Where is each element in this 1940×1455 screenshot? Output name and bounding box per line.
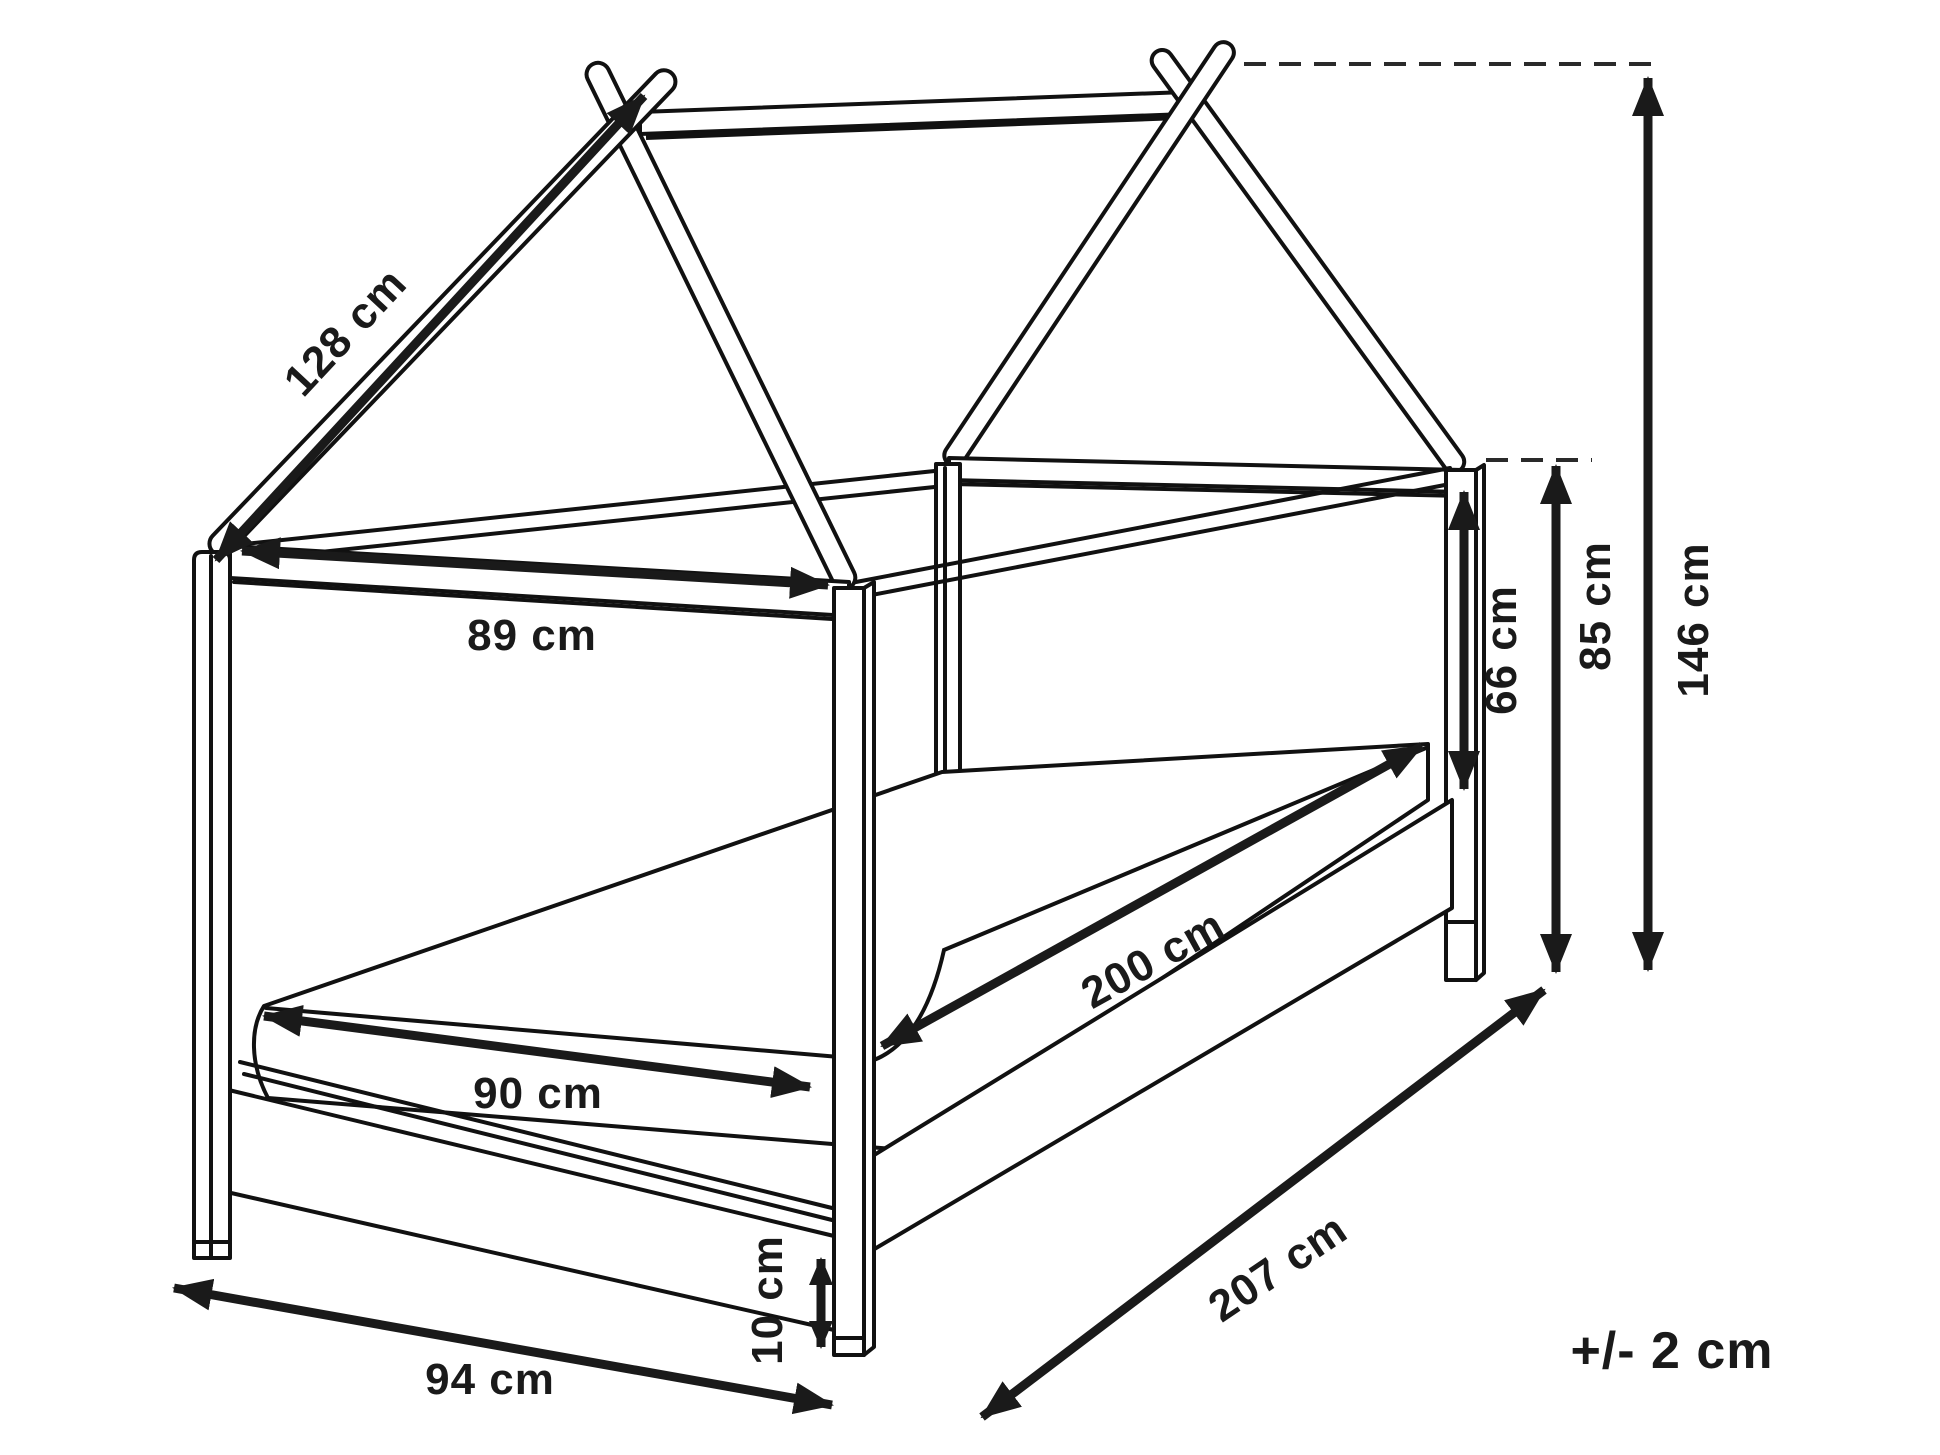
label-side-height: 85 cm — [1571, 541, 1620, 671]
dimension-diagram: 128 cm 89 cm 90 cm 200 cm 94 cm 207 cm 1… — [0, 0, 1940, 1455]
bed-drawing-canvas: 128 cm 89 cm 90 cm 200 cm 94 cm 207 cm 1… — [0, 0, 1940, 1455]
arrow-roof-slope — [216, 96, 644, 560]
label-base-length: 207 cm — [1200, 1204, 1356, 1331]
foot-gable — [936, 38, 1468, 786]
label-top-width: 89 cm — [467, 611, 597, 660]
label-base-width: 94 cm — [425, 1355, 555, 1404]
head-gable — [205, 59, 859, 620]
front-right-post — [834, 582, 874, 1355]
label-tolerance: +/- 2 cm — [1570, 1322, 1773, 1380]
label-clearance: 10 cm — [743, 1235, 792, 1365]
ridge-beam — [640, 92, 1186, 137]
label-total-height: 146 cm — [1669, 542, 1718, 697]
front-left-post — [194, 552, 230, 1258]
label-post-height: 66 cm — [1477, 585, 1526, 715]
label-roof-slope: 128 cm — [275, 259, 417, 406]
label-mattress-width: 90 cm — [473, 1069, 603, 1118]
rear-left-post — [936, 464, 960, 786]
